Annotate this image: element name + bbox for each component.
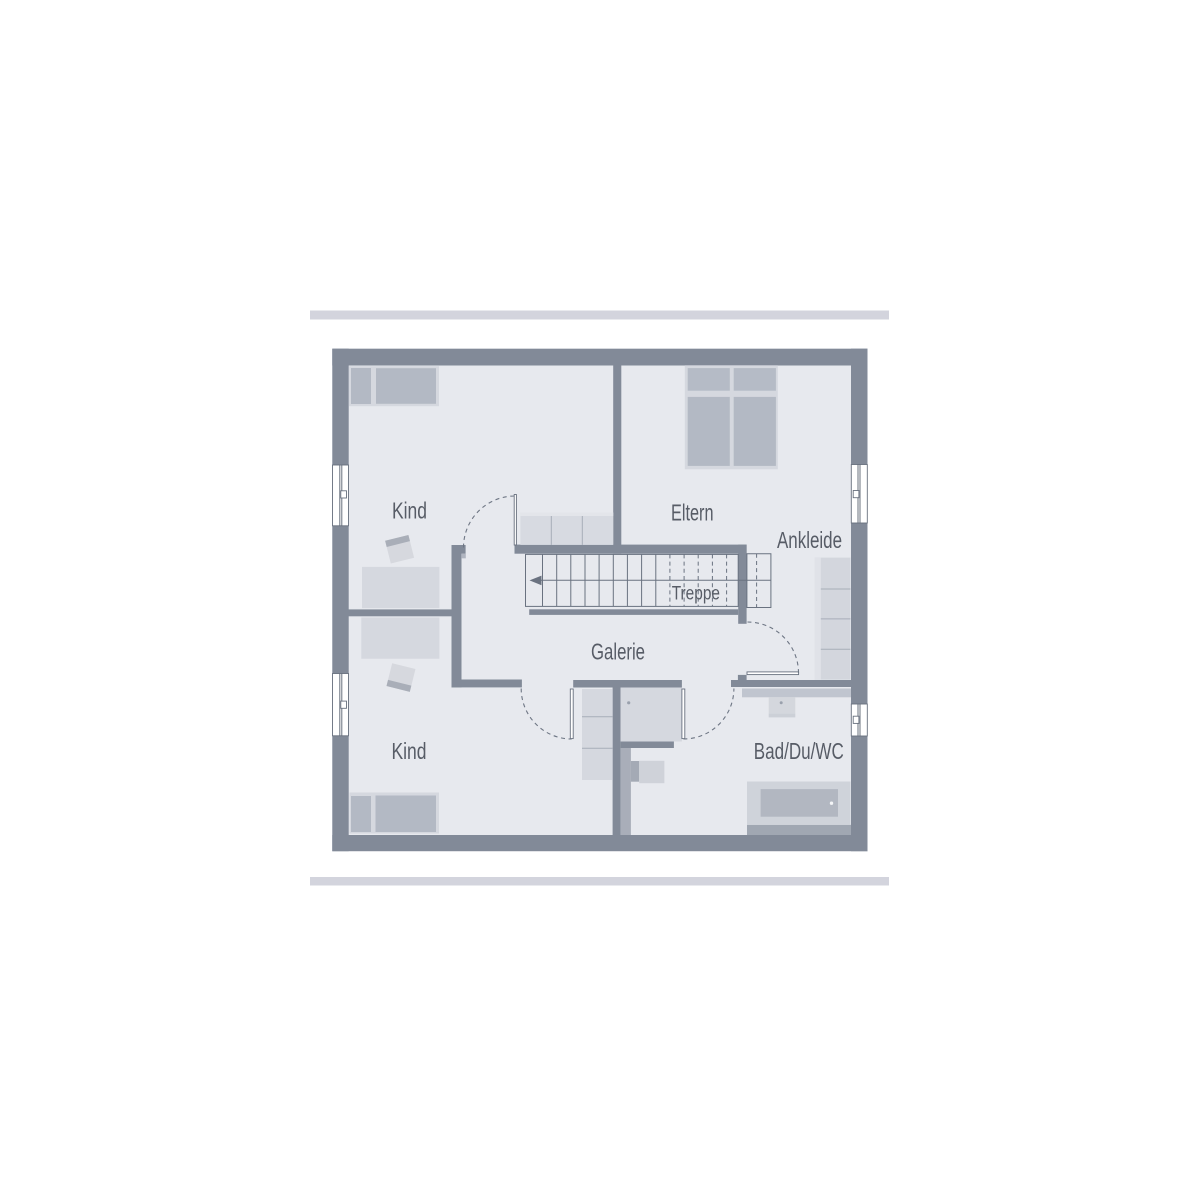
svg-text:Galerie: Galerie bbox=[591, 639, 645, 665]
svg-text:Kind: Kind bbox=[392, 498, 427, 524]
svg-text:Bad/Du/WC: Bad/Du/WC bbox=[754, 738, 844, 764]
svg-text:Kind: Kind bbox=[392, 738, 427, 764]
svg-text:Ankleide: Ankleide bbox=[777, 527, 842, 553]
svg-text:Eltern: Eltern bbox=[671, 500, 714, 526]
svg-text:Treppe: Treppe bbox=[672, 584, 720, 605]
